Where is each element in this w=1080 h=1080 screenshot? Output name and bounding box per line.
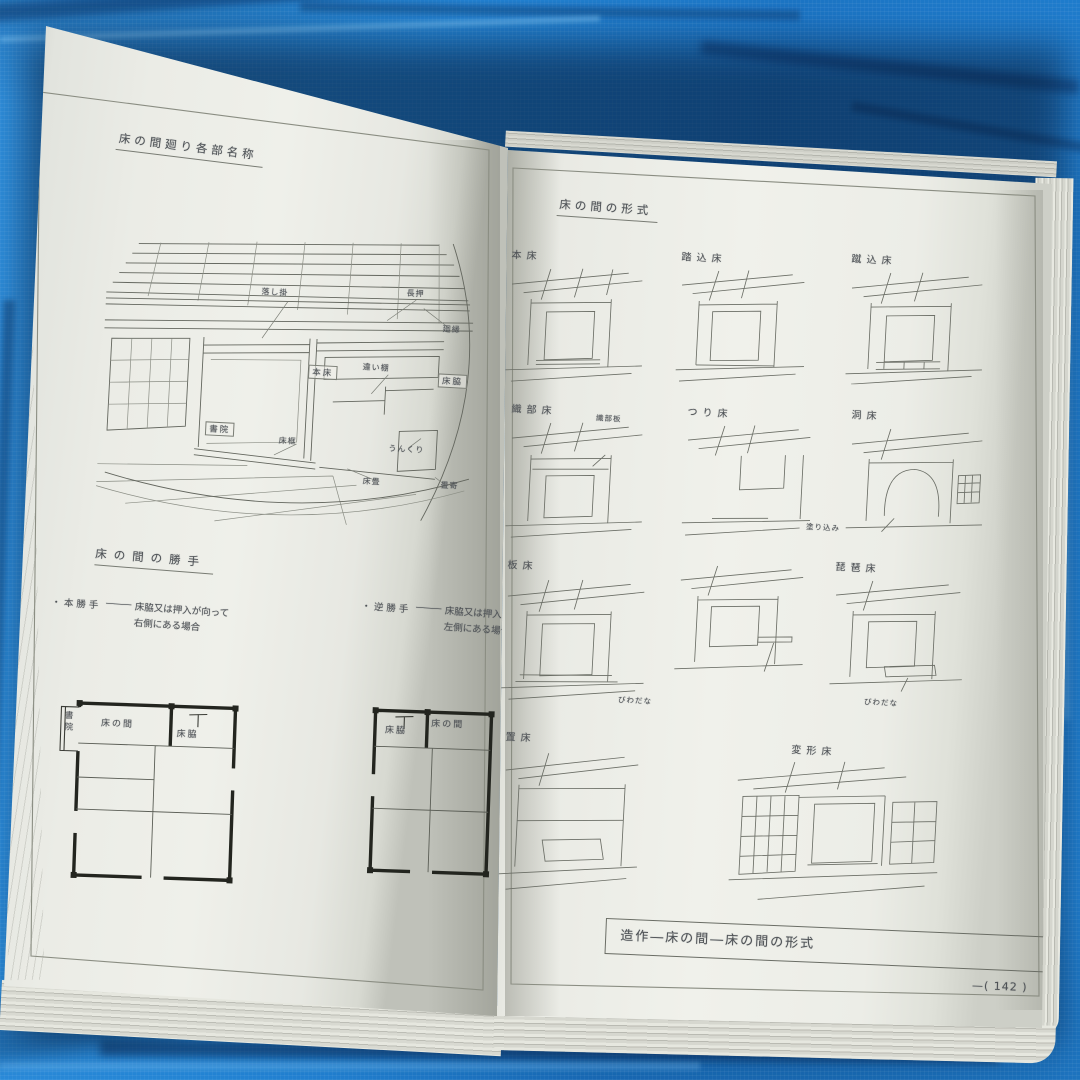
katte-desc-line1: 床脇又は押入が向って bbox=[134, 602, 229, 620]
tsuridoko-sketch bbox=[681, 421, 817, 546]
label-shoin: 書院 bbox=[205, 421, 235, 436]
katte-dash: ——— bbox=[414, 602, 442, 636]
tokonoma-type-itadoko: 板床 bbox=[500, 556, 652, 707]
katte-desc-line2: 左側にある場合 bbox=[443, 622, 510, 638]
biwadoko-sketch bbox=[829, 576, 969, 705]
sublabel-oribeita: 織部板 bbox=[596, 412, 622, 424]
henkeidoko-sketch bbox=[727, 756, 944, 912]
label-chigaidana: 違い棚 bbox=[362, 361, 390, 373]
label-mawaribuchi: 廻縁 bbox=[442, 324, 461, 336]
tokonoma-type-henkeidoko: 変形床 bbox=[727, 738, 945, 912]
label-tatamiyose: 畳寄 bbox=[440, 480, 459, 492]
tokonoma-type-kekomidoko: 蹴込床 bbox=[845, 250, 990, 391]
label-otoshigake: 落し掛 bbox=[261, 286, 289, 298]
tokonoma-type-biwadana-variant bbox=[673, 558, 809, 690]
label-unkuri: うんくり bbox=[388, 443, 425, 456]
biwadana-variant-sketch bbox=[673, 561, 809, 690]
horadoko-sketch bbox=[845, 424, 989, 547]
katte-dash: ——— bbox=[104, 598, 132, 632]
floor-plan-gyakugatte: 床脇 床の間 bbox=[362, 700, 498, 884]
plan1-tokowaki-label: 床脇 bbox=[176, 726, 198, 740]
plan1-shoin-label: 書院 bbox=[62, 710, 75, 733]
plan2-tokonoma-label: 床の間 bbox=[431, 716, 464, 730]
sublabel-biwadana-1: びわだな bbox=[618, 694, 653, 707]
katte-term: ・本勝手 bbox=[50, 594, 102, 630]
tokonoma-type-tsuridoko: つり床 bbox=[681, 403, 818, 546]
sublabel-nurikomi: 塗り込み bbox=[806, 521, 841, 534]
fumikomidoko-sketch bbox=[675, 266, 811, 389]
sublabel-biwadana-2: びわだな bbox=[864, 696, 899, 709]
tokonoma-type-oribedoko: 織部床 bbox=[505, 400, 650, 545]
plan1-tokonoma-label: 床の間 bbox=[101, 716, 134, 730]
label-tokogamachi: 床框 bbox=[278, 435, 297, 447]
katte-term: ・逆勝手 bbox=[360, 598, 412, 634]
oribedoko-sketch bbox=[505, 418, 649, 545]
tokonoma-perspective-drawing: 落し掛 長押 廻縁 本床 違い棚 床脇 書院 床框 うんくり 床畳 畳寄 bbox=[94, 220, 509, 541]
label-hondoko: 本床 bbox=[308, 365, 338, 380]
kekomidoko-sketch bbox=[845, 268, 989, 391]
itadoko-sketch bbox=[500, 574, 651, 707]
katte-desc-line2: 右側にある場合 bbox=[133, 618, 200, 634]
tokonoma-type-okidoko: 置床 bbox=[497, 728, 645, 898]
floor-plan-hongatte: 書院 床の間 床脇 bbox=[43, 692, 245, 889]
label-nageshi: 長押 bbox=[406, 288, 425, 300]
label-tokowaki: 床脇 bbox=[438, 373, 468, 388]
page-number: —( 142 ) bbox=[972, 979, 1028, 994]
plan2-tokowaki-label: 床脇 bbox=[385, 723, 407, 737]
tokonoma-type-fumikomidoko: 踏込床 bbox=[675, 248, 812, 389]
tokonoma-type-hondoko: 本床 bbox=[505, 246, 650, 389]
tokonoma-type-horadoko: 洞床 bbox=[845, 406, 990, 547]
hondoko-sketch bbox=[505, 264, 649, 389]
tokonoma-type-biwadoko: 琵琶床 bbox=[829, 558, 970, 705]
label-tokodatami: 床畳 bbox=[362, 476, 381, 488]
floor-plan-2-sketch bbox=[362, 700, 498, 884]
okidoko-sketch bbox=[497, 746, 644, 898]
